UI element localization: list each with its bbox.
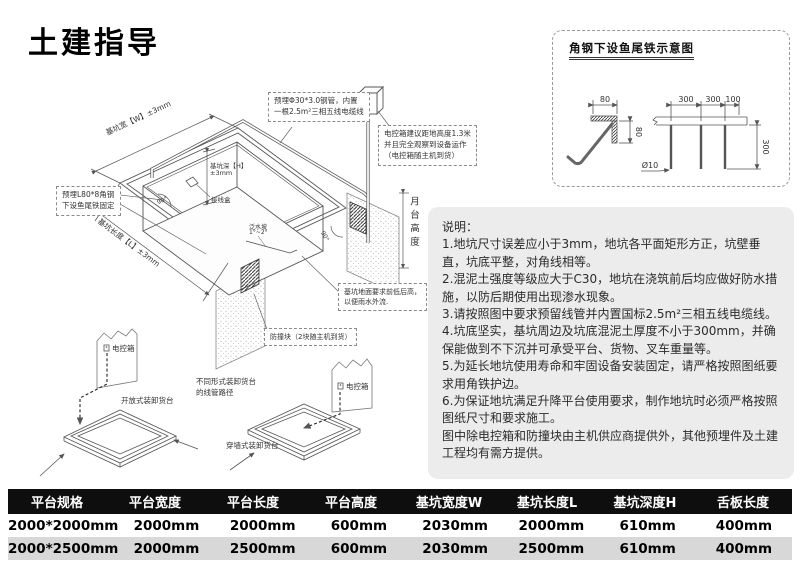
- wall-dock-label: 穿墙式装卸货台: [226, 440, 279, 451]
- dim-label-pit-depth-2: ±3mm: [210, 169, 232, 177]
- cell: 610mm: [600, 514, 696, 537]
- cell: 600mm: [311, 537, 407, 560]
- callout-angle-steel: 预埋L80*8角钢 下设鱼尾铁固定: [56, 186, 121, 216]
- note-item: 5.为延长地坑使用寿命和牢固设备安装固定，请严格按照图纸要求用角铁护边。: [442, 358, 780, 393]
- cell: 2000mm: [118, 537, 214, 560]
- table-row: 2000*2500mm 2000mm 2500mm 600mm 2030mm 2…: [8, 537, 792, 560]
- conduit-note-1: 不同形式装卸货台: [196, 376, 256, 387]
- dim-100: 100: [725, 95, 740, 104]
- col-header: 平台长度: [204, 489, 302, 514]
- note-item: 1.地坑尺寸误差应小于3mm，地坑各平面矩形方正，坑壁垂直，坑底平整，对角线相等…: [442, 236, 780, 271]
- note-item: 3.请按照图中要求预留线管并内置国标2.5m²三相五线电缆线。: [442, 306, 780, 323]
- note-item: 2.混泥土强度等级应大于C30，地坑在浇筑前后均应做好防水措施，以防后期使用出现…: [442, 271, 780, 306]
- cell: 2030mm: [407, 514, 503, 537]
- note-item: 图中除电控箱和防撞块由主机供应商提供外，其他预埋件及土建工程均有需方提供。: [442, 428, 780, 463]
- cell: 600mm: [311, 514, 407, 537]
- platform-height-label: 月台高度: [406, 196, 420, 250]
- callout-bumper: 防撞块（2块随主机到货）: [264, 328, 357, 346]
- cell: 2000*2000mm: [8, 514, 118, 537]
- col-header: 基坑宽度W: [400, 489, 498, 514]
- notes-title: 说明：: [442, 219, 780, 236]
- col-header: 基坑长度L: [498, 489, 596, 514]
- detail-dim-texts: 80 80 300 300 100 300 Ø10: [600, 95, 770, 170]
- cell: 400mm: [696, 514, 792, 537]
- callout-conduit-pipe: 预埋Φ30*3.0钢管，内置 一根2.5m²三相五线电缆线: [268, 92, 370, 122]
- cell: 2500mm: [215, 537, 311, 560]
- dim-300-b: 300: [705, 95, 720, 104]
- col-header: 平台宽度: [106, 489, 204, 514]
- table-header-row: 平台规格 平台宽度 平台长度 平台高度 基坑宽度W 基坑长度L 基坑深度H 舌板…: [8, 489, 792, 514]
- table-row: 2000*2000mm 2000mm 2000mm 600mm 2030mm 2…: [8, 514, 792, 537]
- slope-label-2: 1°~2°: [249, 229, 268, 236]
- cell: 2000mm: [503, 514, 599, 537]
- dim-top-80: 80: [600, 95, 610, 104]
- fishtail-detail-drawing: 80 80 300 300 100 300 Ø10: [553, 31, 791, 188]
- dim-300-v: 300: [761, 139, 770, 154]
- col-header: 舌板长度: [694, 489, 792, 514]
- cell: 400mm: [696, 537, 792, 560]
- cell: 2500mm: [503, 537, 599, 560]
- col-header: 平台规格: [8, 489, 106, 514]
- cell: 2000mm: [118, 514, 214, 537]
- control-box-label-open: 电控箱: [112, 343, 135, 354]
- cell: 2000*2500mm: [8, 537, 118, 560]
- junction-box-label: 接线盒: [211, 194, 231, 204]
- conduit-note-2: 的线管路径: [196, 387, 234, 398]
- control-box-label-wall: 电控箱: [346, 381, 369, 392]
- note-item: 6.为保证地坑满足升降平台使用要求，制作地坑时必须严格按照图纸尺寸和要求施工。: [442, 393, 780, 428]
- callout-control-box: 电控箱建议距地高度1.3米 并且完全观察到设备运作 （电控箱随主机到货）: [378, 125, 477, 166]
- dim-300-a: 300: [678, 95, 693, 104]
- col-header: 基坑深度H: [596, 489, 694, 514]
- cell: 610mm: [600, 537, 696, 560]
- cell: 2000mm: [215, 514, 311, 537]
- page: 土建指导: [0, 0, 800, 565]
- spec-table: 平台规格 平台宽度 平台长度 平台高度 基坑宽度W 基坑长度L 基坑深度H 舌板…: [8, 489, 792, 560]
- col-header: 平台高度: [302, 489, 400, 514]
- dim-side-80: 80: [634, 127, 643, 137]
- callout-pit-floor: 基坑地面要求前低后高， 以便雨水外流.: [338, 283, 427, 311]
- pit-rim: [120, 128, 346, 295]
- dim-dia-10: Ø10: [642, 160, 658, 170]
- notes-panel: 说明： 1.地坑尺寸误差应小于3mm，地坑各平面矩形方正，坑壁垂直，坑底平整，对…: [428, 207, 794, 479]
- cell: 2030mm: [407, 537, 503, 560]
- open-dock-label: 开放式装卸货台: [121, 395, 174, 406]
- fishtail-detail-box: 角钢下设鱼尾铁示意图: [552, 30, 790, 187]
- note-item: 4.坑底坚实，基坑周边及坑底混泥土厚度不小于300mm，并确保能做到不下沉并可承…: [442, 323, 780, 358]
